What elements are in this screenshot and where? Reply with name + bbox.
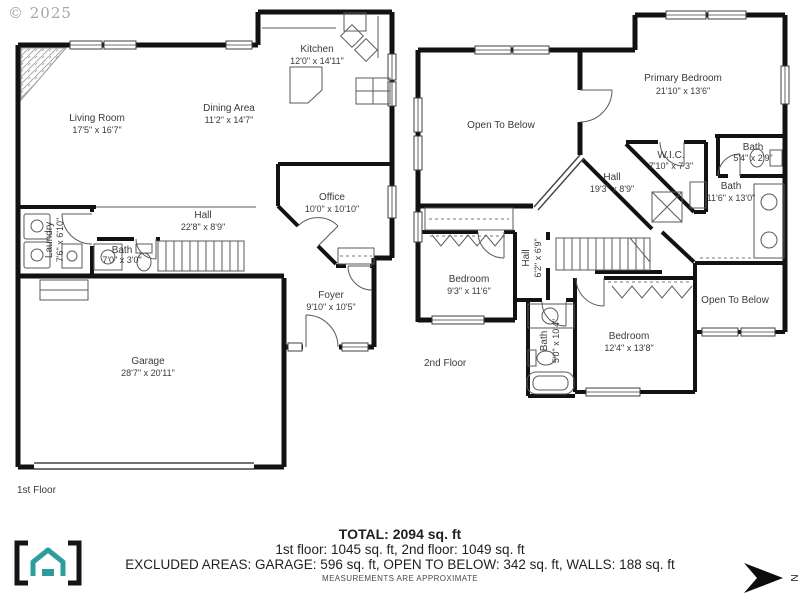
room-label-bath-main: Bath: [721, 181, 742, 192]
second-floor-labels: Open To Below Primary Bedroom 21'10" x 1…: [424, 73, 773, 369]
second-floor-title: 2nd Floor: [424, 358, 467, 369]
room-dims-dining-area: 11'2" x 14'7": [205, 115, 254, 125]
room-label-laundry: Laundry: [44, 222, 55, 258]
floor-areas-text: 1st floor: 1045 sq. ft, 2nd floor: 1049 …: [0, 542, 800, 557]
second-floor-walls: [418, 15, 785, 396]
room-dims-hall-f1: 22'8" x 8'9": [181, 222, 225, 232]
room-dims-bath-f1: 7'0" x 3'0": [102, 255, 141, 265]
room-label-dining-area: Dining Area: [203, 103, 255, 114]
floor-plan-drawing: Living Room 17'5" x 16'7" Kitchen 12'0" …: [0, 0, 800, 600]
room-dims-hall-62: 6'2" x 6'9": [533, 238, 543, 277]
room-label-bath-50: Bath: [539, 331, 550, 352]
room-label-open-to-below-2: Open To Below: [701, 295, 769, 306]
room-label-living-room: Living Room: [69, 113, 125, 124]
first-floor-labels: Living Room 17'5" x 16'7" Kitchen 12'0" …: [17, 44, 359, 496]
first-floor-walls: [18, 12, 392, 467]
floor-plan-page: Living Room 17'5" x 16'7" Kitchen 12'0" …: [0, 0, 800, 600]
room-label-primary-bedroom: Primary Bedroom: [644, 73, 722, 84]
room-label-wic: W.I.C.: [657, 150, 684, 161]
first-floor-doors: [62, 212, 372, 353]
room-dims-foyer: 9'10" x 10'5": [306, 302, 355, 312]
room-label-hall-62: Hall: [521, 249, 532, 266]
excluded-areas-text: EXCLUDED AREAS: GARAGE: 596 sq. ft, OPEN…: [0, 557, 800, 572]
room-dims-garage: 28'7" x 20'11": [121, 368, 175, 378]
room-dims-kitchen: 12'0" x 14'11": [290, 56, 344, 66]
room-dims-office: 10'0" x 10'10": [305, 204, 359, 214]
room-dims-hall-f2: 19'3" x 8'9": [590, 184, 634, 194]
room-label-kitchen: Kitchen: [300, 44, 333, 55]
area-summary: TOTAL: 2094 sq. ft 1st floor: 1045 sq. f…: [0, 526, 800, 591]
room-label-office: Office: [319, 192, 345, 203]
room-label-hall-f1: Hall: [194, 210, 211, 221]
first-floor-plan: Living Room 17'5" x 16'7" Kitchen 12'0" …: [17, 12, 396, 496]
room-dims-bedroom-124: 12'4" x 13'8": [604, 343, 653, 353]
copyright-watermark: © 2025: [8, 4, 72, 22]
room-dims-living-room: 17'5" x 16'7": [72, 125, 121, 135]
room-label-garage: Garage: [131, 356, 165, 367]
second-floor-plan: Open To Below Primary Bedroom 21'10" x 1…: [414, 11, 789, 396]
hatched-corner-feature: [21, 48, 66, 100]
room-label-bath-small: Bath: [743, 142, 764, 153]
disclaimer-text: MEASUREMENTS ARE APPROXIMATE: [0, 574, 800, 583]
room-dims-bath-50: 5'0" x 10'4": [551, 319, 561, 363]
room-dims-bedroom-93: 9'3" x 11'6": [447, 286, 491, 296]
room-label-hall-f2: Hall: [603, 172, 620, 183]
total-area-text: TOTAL: 2094 sq. ft: [0, 526, 800, 542]
room-label-foyer: Foyer: [318, 290, 344, 301]
room-dims-wic: 7'10" x 7'3": [649, 161, 693, 171]
room-dims-bath-main: 11'6" x 13'0": [707, 193, 756, 203]
room-dims-bath-small: 5'4" x 2'9": [733, 153, 772, 163]
room-label-open-to-below-1: Open To Below: [467, 120, 535, 131]
room-label-bedroom-124: Bedroom: [609, 331, 650, 342]
room-dims-laundry: 7'6" x 6'10": [55, 218, 65, 262]
room-label-bedroom-93: Bedroom: [449, 274, 490, 285]
first-floor-title: 1st Floor: [17, 485, 57, 496]
room-dims-primary-bedroom: 21'10" x 13'6": [656, 86, 710, 96]
first-floor-fixtures: [24, 13, 390, 472]
